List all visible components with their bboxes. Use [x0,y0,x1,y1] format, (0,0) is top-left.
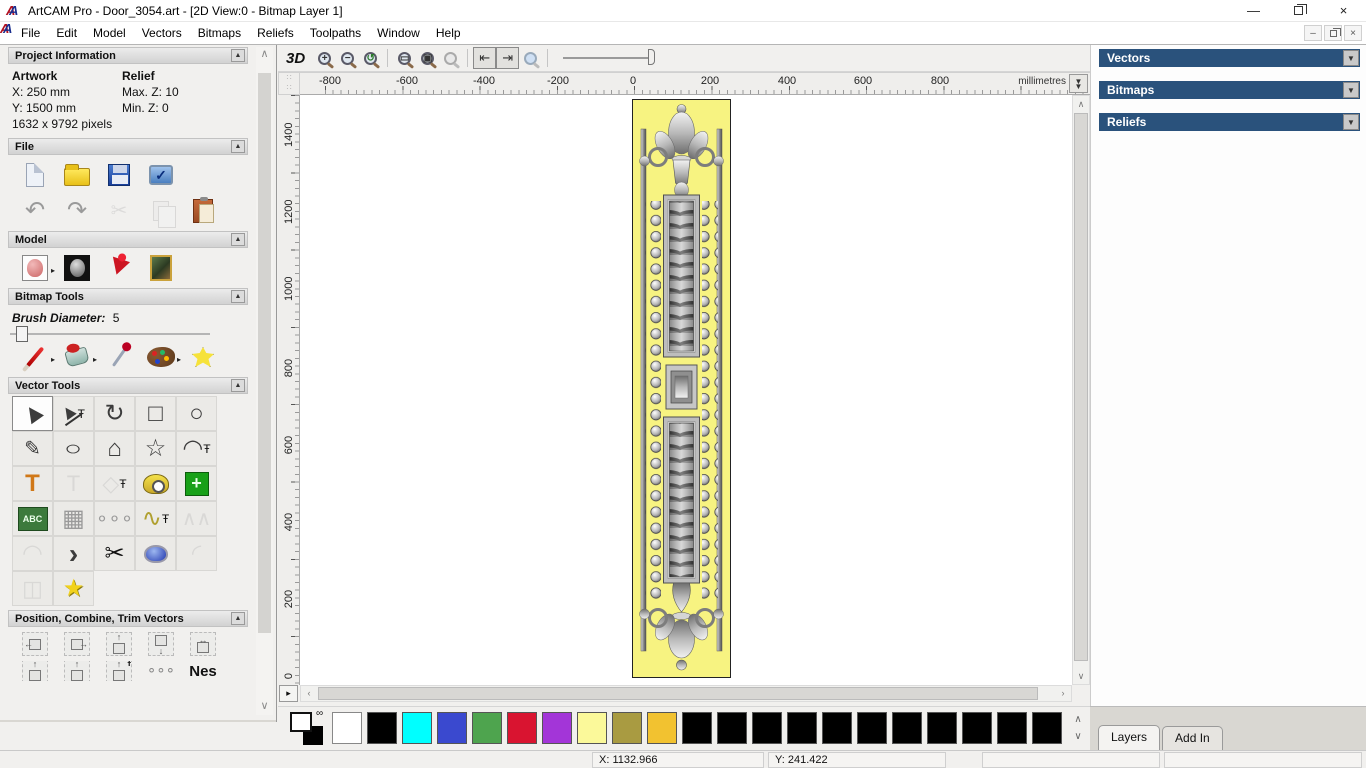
restore-icon [1294,6,1303,15]
copy-icon [153,201,169,221]
primary-secondary-colour-indicator[interactable]: ∞ [290,712,326,746]
copy-button[interactable] [140,195,182,227]
units-dropdown-button[interactable]: ▼▼ [1069,74,1088,93]
zoom-previous-icon: ↺ [364,52,377,65]
colour-palette: ∞ ∧ ∨ [278,706,1090,750]
palette-icon [147,347,175,367]
h-tick-label: -200 [547,75,569,87]
scroll-right-button[interactable]: › [1055,686,1071,701]
brush-diameter-label: Brush Diameter: [12,311,105,325]
trim-vectors-button[interactable]: ✂ [94,536,135,571]
colour-swatch[interactable] [402,712,432,744]
zoom-fit-icon: ▣ [421,52,434,65]
brush-diameter-value: 5 [113,311,120,325]
flood-fill-icon [64,346,89,367]
transform-icon: ↻ [104,404,124,424]
create-text-button[interactable]: T [12,466,53,501]
zoom-in-button[interactable]: + [313,47,336,69]
slider-handle[interactable] [16,326,28,342]
zoom-fit-button[interactable]: ▣ [416,47,439,69]
v-tick-label: 400 [283,512,295,532]
align-right-button[interactable]: → [56,628,98,660]
artwork-pixels: 1632 x 9792 pixels [12,116,122,132]
v-tick-label: 200 [283,589,295,609]
colour-picker-button[interactable] [98,341,140,373]
menu-bitmaps[interactable]: Bitmaps [190,23,249,43]
colour-swatch[interactable] [542,712,572,744]
fillet-vectors-button[interactable]: ◜ [176,536,217,571]
scroll-down-button[interactable]: ∨ [1073,668,1089,684]
palette-scroll-up-icon[interactable]: ∧ [1070,711,1086,728]
h-tick-label: 200 [701,75,719,87]
mountains-icon: ∧∧ [182,509,211,529]
link-colours-icon[interactable]: ∞ [316,708,323,719]
colour-swatch[interactable] [892,712,922,744]
select-vectors-button[interactable]: ▶ [12,396,53,431]
new-model-button[interactable] [14,159,56,191]
mdi-restore-icon [1330,30,1337,37]
wrap-text-button[interactable]: T [53,466,94,501]
panel-vectors[interactable]: Vectors ▼ [1099,49,1360,67]
h-tick-label: 0 [630,75,636,87]
close-button[interactable]: × [1321,0,1366,22]
v-tick-label: 800 [283,358,295,378]
scroll-left-button[interactable]: ‹ [301,686,317,701]
scrollbar-thumb[interactable] [1074,113,1088,661]
ruler-corner: ∷∷ [278,72,300,95]
assistant-tab-strip: Assistant Toolpaths [0,720,277,722]
colour-swatch[interactable] [472,712,502,744]
zoom-objects-button[interactable] [439,47,462,69]
panel-title: Bitmaps [1107,83,1154,97]
canvas-viewport[interactable] [300,95,1072,685]
align-left-button[interactable]: ← [14,628,56,660]
zoom-out-button[interactable]: − [336,47,359,69]
pin-icon: Ŧ [203,442,210,456]
collapse-icon[interactable]: ▲ [231,233,245,246]
toggle-left-panel-button[interactable]: ⇤ [473,47,496,69]
colour-swatch[interactable] [507,712,537,744]
join-arrow-icon: › [69,544,78,564]
primary-colour-chip[interactable] [290,712,312,732]
scroll-up-icon[interactable]: ∧ [256,47,273,63]
tab-layers[interactable]: Layers [1098,725,1160,750]
mdi-minimize-button[interactable]: – [1304,25,1322,41]
offset-icon: ◇ [102,474,119,494]
vector-doctor-button[interactable]: ★ [53,571,94,606]
flyout-arrow-icon[interactable]: ▸ [177,355,181,364]
save-floppy-icon [108,164,130,186]
menu-vectors[interactable]: Vectors [134,23,190,43]
arc-icon: ◠ [182,439,203,459]
block-copy-button[interactable]: ∘∘∘ [94,501,135,536]
bitmap-image-icon [150,255,172,281]
v-tick-label: 1000 [283,281,295,301]
cut-button[interactable]: ✂ [98,195,140,227]
paint-brush-button[interactable]: ▸ [14,341,56,373]
align-right-icon: → [64,632,90,656]
minimize-button[interactable]: — [1231,0,1276,22]
section-project-information[interactable]: Project Information ▲ [8,47,248,64]
h-tick-label: 400 [778,75,796,87]
zoom-previous-button[interactable]: ↺ [359,47,382,69]
bitmap-toolbar-row: ▸ ▸ ▸ [0,339,252,375]
vector-tools-grid: ▶ ▶Ŧ ↻ □ ○ ✎ ○ ⌂ ☆ ◠Ŧ T T ◇Ŧ + ABC ▦ ∘∘∘… [12,396,227,606]
lamp-icon [108,257,130,278]
dropdown-icon[interactable]: ▼ [1343,114,1359,130]
scrollbar-thumb[interactable] [258,73,271,633]
panel-bitmaps[interactable]: Bitmaps ▼ [1099,81,1360,99]
paint-brush-icon [26,347,44,368]
collapse-icon[interactable]: ▲ [231,290,245,303]
zoom-window-icon: ▭ [398,52,411,65]
create-polyline-button[interactable]: ✎ [12,431,53,466]
menu-edit[interactable]: Edit [48,23,85,43]
assistant-scrollbar[interactable]: ∧ ∨ [256,47,273,715]
circle-icon: ○ [189,404,204,424]
colour-swatch[interactable] [1032,712,1062,744]
ellipse-icon: ○ [64,439,82,459]
canvas-horizontal-scrollbar[interactable]: ‹ › [300,685,1072,702]
measure-button[interactable] [135,466,176,501]
export-model-button[interactable]: ✓ [140,159,182,191]
view-3d-button[interactable]: 3D [286,50,305,67]
tape-measure-icon [143,474,169,494]
bitmap-to-vector-button[interactable] [182,341,224,373]
preview-button[interactable] [519,47,542,69]
weld-vectors-button[interactable] [135,536,176,571]
model-size-icon [22,255,48,281]
colour-swatch[interactable] [927,712,957,744]
view-toolbar: 3D + − ↺ ▭ ▣ ⇤ ⇥ [278,45,1090,72]
palette-scrollbar[interactable]: ∧ ∨ [1070,711,1086,747]
assistant-panel: Project Information ▲ Artwork Relief X: … [0,45,277,722]
artcam-window: AA ArtCAM Pro - Door_3054.art - [2D View… [0,0,1366,768]
cut-scissors-icon: ✂ [111,201,128,221]
model-check-icon: ✓ [149,165,173,185]
panel-reliefs[interactable]: Reliefs ▼ [1099,113,1360,131]
arc-fit-icon: ◠ [22,544,43,564]
flyout-arrow-icon[interactable]: ▸ [51,355,55,364]
pin-icon: Ŧ [119,477,126,491]
horizontal-ruler: -800 -600 -400 -200 0 200 400 600 800 mi… [300,72,1090,95]
menu-bar: AA File Edit Model Vectors Bitmaps Relie… [0,22,1366,45]
centre-horizontal-button[interactable]: ↑ [56,661,98,681]
colour-swatch[interactable] [437,712,467,744]
h-tick-label: 800 [931,75,949,87]
slice-vectors-button[interactable]: ◫ [12,571,53,606]
vertical-ruler: 1400 1200 1000 800 600 400 200 0 [278,95,300,685]
dropdown-icon[interactable]: ▼ [1343,50,1359,66]
artwork-x: X: 250 mm [12,84,122,100]
relief-min-z: Min. Z: 0 [122,100,242,116]
h-tick-label: -600 [396,75,418,87]
create-star-button[interactable]: ☆ [135,431,176,466]
open-folder-icon [64,168,90,186]
mdi-close-button[interactable]: × [1344,25,1362,41]
adjust-model-button[interactable] [56,252,98,284]
create-arc-button[interactable]: ◠Ŧ [176,431,217,466]
set-model-size-button[interactable]: ▸ [14,252,56,284]
text-on-curve-icon: T [67,474,80,494]
redo-icon: ↷ [67,201,87,221]
title-bar: AA ArtCAM Pro - Door_3054.art - [2D View… [0,0,1366,22]
zoom-in-icon: + [318,52,331,65]
align-centre-icon: ↔ [190,632,216,656]
app-logo-icon: AA [6,4,22,18]
rectangle-icon: □ [148,404,163,424]
polygon-icon: ⌂ [107,439,122,459]
menu-model[interactable]: Model [85,23,134,43]
fade-slider-handle[interactable] [648,49,655,65]
bitmap-to-vector-icon [192,347,214,367]
fit-arcs-button[interactable]: ◠ [12,536,53,571]
colour-swatch[interactable] [752,712,782,744]
colour-swatch[interactable] [857,712,887,744]
centre-vertical-button[interactable]: ↑Ŧ [98,661,140,681]
centre-icon: ↑ [22,661,48,681]
align-centre-button[interactable]: ↔ [182,628,224,660]
abc-text-icon: ABC [18,507,48,531]
weld-jar-icon [144,545,168,563]
status-bar: X: 1132.966 Y: 241.422 [0,750,1366,768]
collapse-icon[interactable]: ▲ [231,140,245,153]
section-title: Vector Tools [15,380,80,392]
join-vectors-button[interactable]: › [53,536,94,571]
door-artwork-image[interactable] [632,99,731,678]
palette-scroll-down-icon[interactable]: ∨ [1070,728,1086,745]
project-information-body: Artwork Relief X: 250 mm Max. Z: 10 Y: 1… [0,66,252,136]
align-left-icon: ← [22,632,48,656]
undo-button[interactable]: ↶ [14,195,56,227]
section-title: Project Information [15,50,116,62]
v-tick-label: 1200 [283,204,295,224]
section-title: File [15,141,34,153]
zoom-window-button[interactable]: ▭ [393,47,416,69]
trim-scissors-icon: ✂ [104,544,124,564]
status-cell-empty [1164,752,1362,768]
paste-vector-button[interactable]: + [176,466,217,501]
canvas-vertical-scrollbar[interactable]: ∧ ∨ [1072,95,1090,685]
relief-max-z: Max. Z: 10 [122,84,242,100]
new-file-icon [26,163,44,187]
colour-swatch[interactable] [577,712,607,744]
toggle-right-icon: ⇥ [502,50,513,66]
artwork-label: Artwork [12,68,122,84]
right-panel: Vectors ▼ Bitmaps ▼ Reliefs ▼ [1090,45,1366,722]
colour-swatch[interactable] [787,712,817,744]
align-toolbar-row-1: ← → ↑ ↓ ↔ [0,629,252,661]
swatch-row [332,712,1067,744]
section-vector-tools[interactable]: Vector Tools ▲ [8,377,248,394]
colour-swatch[interactable] [647,712,677,744]
scatter-button[interactable]: ∘∘∘ [140,661,182,681]
collapse-icon[interactable]: ▲ [231,49,245,62]
polyline-icon: ✎ [24,439,41,459]
align-top-icon: ↑ [106,632,132,656]
pin-icon: Ŧ [127,661,133,668]
scroll-down-icon[interactable]: ∨ [256,699,273,715]
dropdown-icon[interactable]: ▼ [1343,82,1359,98]
brush-diameter-slider[interactable] [10,333,210,335]
model-invert-icon [64,255,90,281]
menu-reliefs[interactable]: Reliefs [249,23,302,43]
nudge-path-icon: ∿ [142,509,162,529]
h-tick-label: -800 [319,75,341,87]
section-file[interactable]: File ▲ [8,138,248,155]
save-model-button[interactable] [98,159,140,191]
section-position-combine-trim[interactable]: Position, Combine, Trim Vectors ▲ [8,610,248,627]
restore-button[interactable] [1276,0,1321,22]
mdi-restore-button[interactable] [1324,25,1342,41]
centre-h-icon: ↑ [64,661,90,681]
menu-window[interactable]: Window [369,23,428,43]
tab-add-in[interactable]: Add In [1162,726,1223,750]
cursor-x-readout: X: 1132.966 [592,752,764,768]
edit-colours-button[interactable]: ▸ [140,341,182,373]
colour-swatch[interactable] [612,712,642,744]
colour-swatch[interactable] [367,712,397,744]
colour-swatch[interactable] [997,712,1027,744]
toggle-right-panel-button[interactable]: ⇥ [496,47,519,69]
file-toolbar-row-1: ✓ [0,157,252,193]
section-model[interactable]: Model ▲ [8,231,248,248]
paste-button[interactable] [182,195,224,227]
text-paragraph-button[interactable]: ABC [12,501,53,536]
preview-magnifier-icon [524,52,537,65]
align-bottom-icon: ↓ [148,632,174,656]
fillet-icon: ◜ [192,544,201,564]
nesting-label: Nes [189,663,217,680]
select-cursor-icon: ▶ [20,401,45,425]
centre-in-page-button[interactable]: ↑ [14,661,56,681]
align-bottom-button[interactable]: ↓ [140,628,182,660]
scatter-dots-icon: ∘∘∘ [147,661,175,681]
section-title: Bitmap Tools [15,291,84,303]
align-toolbar-row-2: ↑ ↑ ↑Ŧ ∘∘∘ Nes [0,661,252,683]
ruler-units-label: millimetres [1018,76,1066,87]
undo-icon: ↶ [25,201,45,221]
redo-button[interactable]: ↷ [56,195,98,227]
zoom-out-icon: − [341,52,354,65]
paste-clipboard-icon [193,199,213,223]
artwork-y: Y: 1500 mm [12,100,122,116]
distort-grid-icon: ▦ [62,509,85,529]
create-rectangle-button[interactable]: □ [135,396,176,431]
menu-toolpaths[interactable]: Toolpaths [302,23,369,43]
open-model-button[interactable] [56,159,98,191]
colour-swatch[interactable] [682,712,712,744]
paste-along-curve-button[interactable]: ∿Ŧ [135,501,176,536]
colour-swatch[interactable] [717,712,747,744]
envelope-distort-button[interactable]: ▦ [53,501,94,536]
nesting-button[interactable]: Nes [182,661,224,681]
model-toolbar-row: ▸ [0,250,252,286]
centre-v-icon: ↑Ŧ [106,661,132,681]
node-edit-icon: ▶ [57,401,82,425]
section-title: Position, Combine, Trim Vectors [15,613,184,625]
eyedropper-icon [111,347,126,367]
load-bitmap-button[interactable] [140,252,182,284]
fit-vectors-button[interactable]: ∧∧ [176,501,217,536]
panel-title: Reliefs [1107,115,1146,129]
transform-vectors-button[interactable]: ↻ [94,396,135,431]
fade-slider[interactable] [563,57,655,59]
offset-vectors-button[interactable]: ◇Ŧ [94,466,135,501]
create-polygon-button[interactable]: ⌂ [94,431,135,466]
collapse-icon[interactable]: ▲ [231,379,245,392]
h-tick-label: 600 [854,75,872,87]
flood-fill-button[interactable]: ▸ [56,341,98,373]
v-tick-label: 0 [283,666,295,686]
colour-swatch[interactable] [822,712,852,744]
scroll-up-button[interactable]: ∧ [1073,96,1089,112]
relief-label: Relief [122,68,242,84]
collapse-icon[interactable]: ▲ [231,612,245,625]
colour-swatch[interactable] [962,712,992,744]
zoom-objects-icon [444,52,457,65]
pan-mode-button[interactable]: ▸ [279,685,298,702]
section-bitmap-tools[interactable]: Bitmap Tools ▲ [8,288,248,305]
toggle-left-icon: ⇤ [479,50,490,66]
menu-help[interactable]: Help [428,23,469,43]
star-icon: ☆ [145,439,167,459]
h-tick-label: -400 [473,75,495,87]
node-editing-button[interactable]: ▶Ŧ [53,396,94,431]
status-cell-empty [982,752,1160,768]
create-ellipse-button[interactable]: ○ [53,431,94,466]
slice-icon: ◫ [22,579,43,599]
file-toolbar-row-2: ↶ ↷ ✂ [0,193,252,229]
panel-title: Vectors [1107,51,1150,65]
window-title: ArtCAM Pro - Door_3054.art - [2D View:0 … [28,4,343,18]
colour-swatch[interactable] [332,712,362,744]
green-cross-icon: + [185,472,209,496]
align-top-button[interactable]: ↑ [98,628,140,660]
scatter-copies-icon: ∘∘∘ [96,509,134,529]
lighting-button[interactable] [98,252,140,284]
v-tick-label: 600 [283,435,295,455]
yellow-star-icon: ★ [63,574,85,603]
menu-file[interactable]: File [13,23,48,43]
section-title: Model [15,234,47,246]
flyout-arrow-icon[interactable]: ▸ [51,266,55,275]
cursor-y-readout: Y: 241.422 [768,752,946,768]
text-tool-icon: T [25,474,40,494]
create-circle-button[interactable]: ○ [176,396,217,431]
v-tick-label: 1400 [283,127,295,147]
layers-tab-strip: Layers Add In [1090,706,1366,750]
pin-icon: Ŧ [162,512,169,526]
scrollbar-thumb[interactable] [318,687,1038,700]
flyout-arrow-icon[interactable]: ▸ [93,355,97,364]
